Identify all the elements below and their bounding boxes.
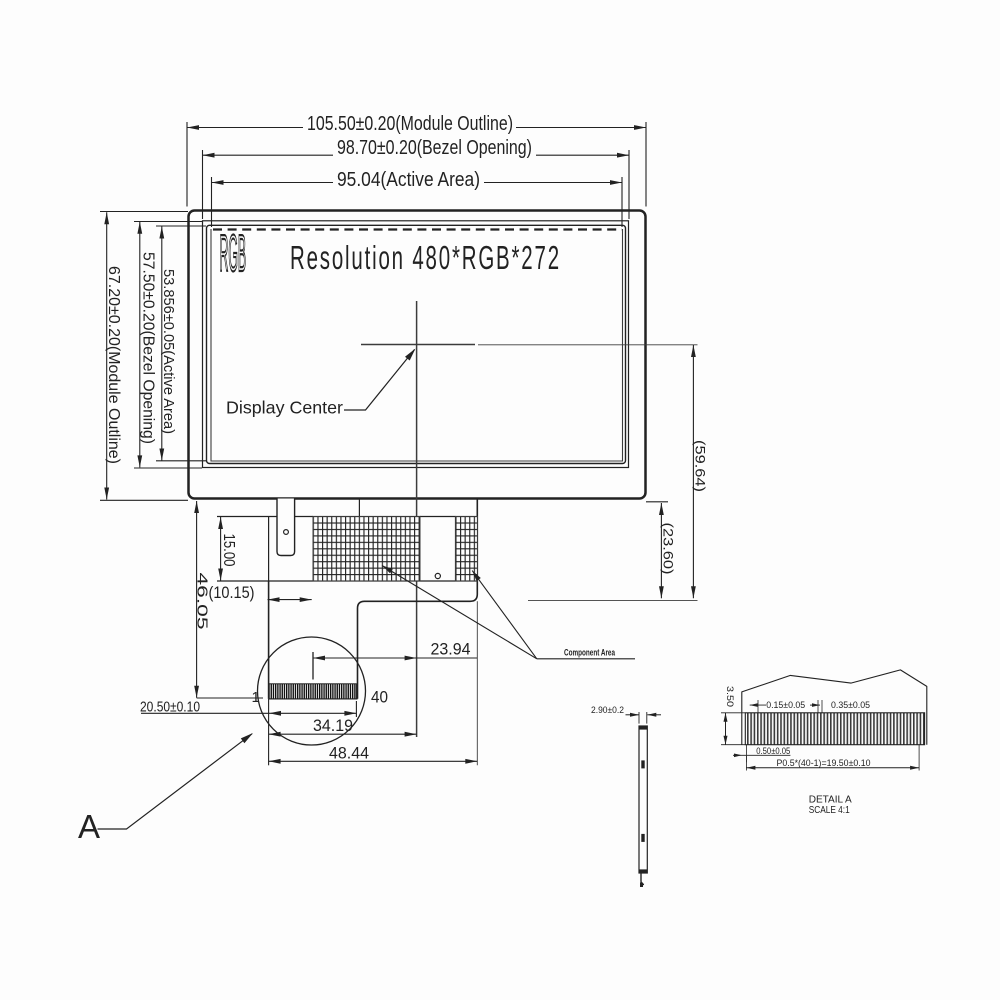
svg-text:Display Center: Display Center [226, 398, 343, 418]
svg-text:0.35±0.05: 0.35±0.05 [831, 700, 870, 710]
svg-text:46.05: 46.05 [194, 573, 210, 630]
svg-text:(23.60): (23.60) [661, 523, 677, 575]
svg-text:15.00: 15.00 [220, 534, 237, 567]
svg-text:67.20±0.20(Module Outline): 67.20±0.20(Module Outline) [105, 266, 122, 464]
svg-text:2.90±0.2: 2.90±0.2 [591, 705, 624, 716]
svg-text:P0.5*(40-1)=19.50±0.10: P0.5*(40-1)=19.50±0.10 [777, 758, 871, 768]
svg-text:SCALE 4:1: SCALE 4:1 [809, 804, 850, 816]
svg-text:A: A [78, 808, 100, 845]
svg-text:48.44: 48.44 [329, 745, 369, 763]
svg-text:Component Area: Component Area [564, 648, 616, 658]
svg-text:0.50±0.05: 0.50±0.05 [756, 746, 790, 756]
svg-text:(10.15): (10.15) [209, 583, 255, 602]
svg-text:0.15±0.05: 0.15±0.05 [766, 700, 805, 710]
svg-text:23.94: 23.94 [431, 641, 471, 659]
svg-text:1: 1 [252, 689, 260, 706]
svg-text:34.19: 34.19 [313, 717, 353, 735]
svg-text:(59.64): (59.64) [693, 440, 709, 492]
svg-text:RGB: RGB [220, 226, 247, 284]
svg-text:105.50±0.20(Module Outline): 105.50±0.20(Module Outline) [307, 113, 513, 135]
svg-text:57.50±0.20(Bezel Opening): 57.50±0.20(Bezel Opening) [140, 252, 157, 444]
svg-text:40: 40 [371, 689, 388, 707]
svg-text:53.856±0.05(Active Area): 53.856±0.05(Active Area) [160, 269, 177, 434]
svg-text:Resolution 480*RGB*272: Resolution 480*RGB*272 [290, 239, 559, 276]
svg-text:98.70±0.20(Bezel Opening): 98.70±0.20(Bezel Opening) [337, 137, 532, 159]
svg-text:95.04(Active Area): 95.04(Active Area) [337, 169, 480, 191]
svg-text:3.50: 3.50 [724, 686, 735, 707]
